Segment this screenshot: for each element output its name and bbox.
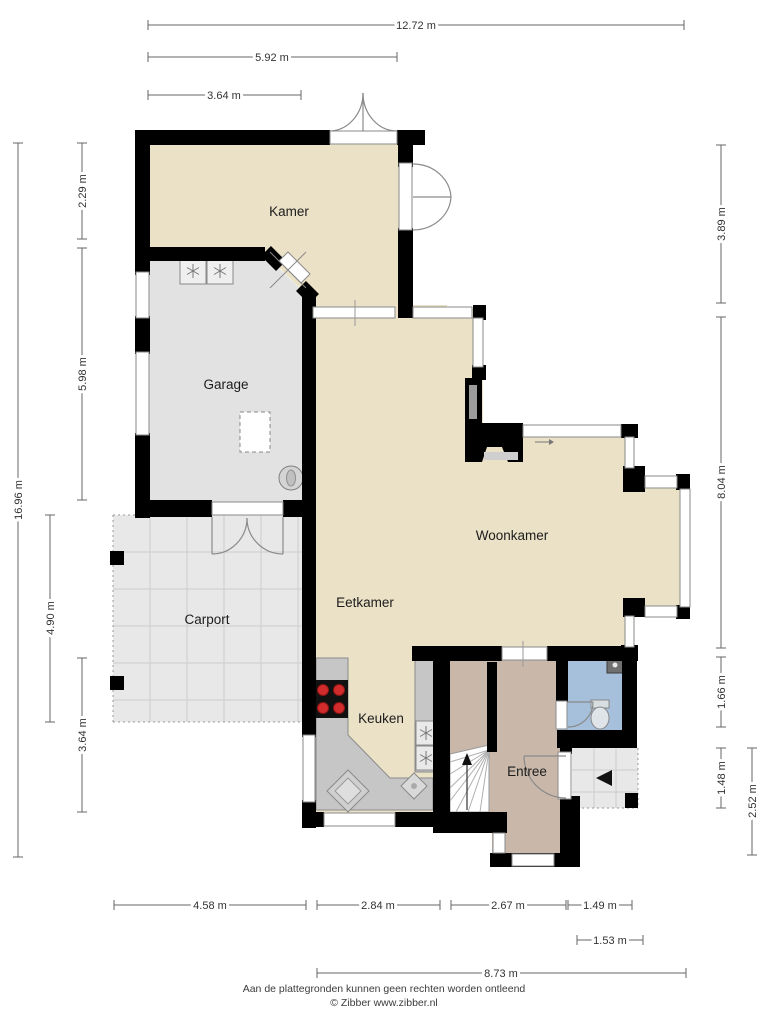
dimension-right-5: 2.52 m	[747, 748, 759, 855]
dimension-top-3: 3.64 m	[148, 90, 301, 102]
dimension-top-1: 12.72 m	[148, 20, 684, 32]
floor-plan-canvas: 12.72 m 5.92 m 3.64 m 16.96 m 2.29 m 5.9…	[0, 0, 768, 1024]
dimension-right-2: 8.04 m	[716, 317, 728, 648]
svg-text:1.48 m: 1.48 m	[716, 761, 728, 795]
footer: Aan de plattegronden kunnen geen rechten…	[243, 983, 526, 1009]
dimension-right-3: 1.66 m	[716, 657, 728, 727]
svg-text:5.92 m: 5.92 m	[255, 52, 289, 64]
svg-text:4.58 m: 4.58 m	[193, 900, 227, 912]
dimension-bottom-3: 2.67 m	[451, 900, 566, 912]
dimension-left-3: 5.98 m	[77, 248, 89, 500]
dimension-left-1: 16.96 m	[13, 143, 25, 857]
svg-text:16.96 m: 16.96 m	[13, 480, 25, 520]
svg-text:5.98 m: 5.98 m	[77, 357, 89, 391]
toilet-icon	[591, 707, 609, 729]
svg-text:12.72 m: 12.72 m	[396, 20, 436, 32]
sink-faucet-icon	[411, 783, 417, 789]
svg-text:8.04 m: 8.04 m	[716, 465, 728, 499]
room-label-garage: Garage	[203, 377, 248, 392]
dimension-bottom-4: 1.49 m	[568, 900, 632, 912]
room-label-eetkamer: Eetkamer	[336, 595, 394, 610]
dimension-bottom-6: 8.73 m	[317, 968, 686, 980]
fireplace-hearth	[484, 452, 518, 460]
svg-text:2.84 m: 2.84 m	[361, 900, 395, 912]
room-label-entree: Entree	[507, 764, 547, 779]
dimension-top-2: 5.92 m	[148, 52, 397, 64]
svg-text:2.29 m: 2.29 m	[77, 174, 89, 208]
svg-text:2.52 m: 2.52 m	[747, 784, 759, 818]
room-label-woonkamer: Woonkamer	[476, 528, 549, 543]
svg-text:1.49 m: 1.49 m	[583, 900, 617, 912]
footer-credit: © Zibber www.zibber.nl	[330, 997, 438, 1009]
room-label-keuken: Keuken	[358, 711, 404, 726]
dimension-left-4: 4.90 m	[45, 515, 57, 722]
room-woonkamer-floor-west	[412, 308, 483, 655]
svg-text:2.67 m: 2.67 m	[491, 900, 525, 912]
dimension-right-4: 1.48 m	[716, 748, 728, 808]
svg-text:1.53 m: 1.53 m	[593, 935, 627, 947]
room-woonkamer-bay-floor	[630, 476, 686, 610]
room-label-carport: Carport	[184, 612, 229, 627]
svg-text:4.90 m: 4.90 m	[45, 601, 57, 635]
dimension-left-5: 3.64 m	[77, 658, 89, 812]
room-label-kamer: Kamer	[269, 204, 309, 219]
svg-text:1.66 m: 1.66 m	[716, 675, 728, 709]
dimension-bottom-1: 4.58 m	[114, 900, 306, 912]
footer-disclaimer: Aan de plattegronden kunnen geen rechten…	[243, 983, 526, 995]
svg-text:3.89 m: 3.89 m	[716, 207, 728, 241]
dimension-right-1: 3.89 m	[716, 145, 728, 303]
svg-text:3.64 m: 3.64 m	[77, 718, 89, 752]
dimension-bottom-2: 2.84 m	[317, 900, 440, 912]
floorplan-page: 12.72 m 5.92 m 3.64 m 16.96 m 2.29 m 5.9…	[0, 0, 768, 1024]
svg-text:3.64 m: 3.64 m	[207, 90, 241, 102]
svg-text:8.73 m: 8.73 m	[484, 968, 518, 980]
fireplace-flue	[469, 385, 477, 419]
dimension-bottom-5: 1.53 m	[577, 935, 643, 947]
hatch-dashed-outline	[240, 412, 270, 452]
dimension-left-2: 2.29 m	[77, 143, 89, 239]
stairs	[450, 745, 489, 812]
